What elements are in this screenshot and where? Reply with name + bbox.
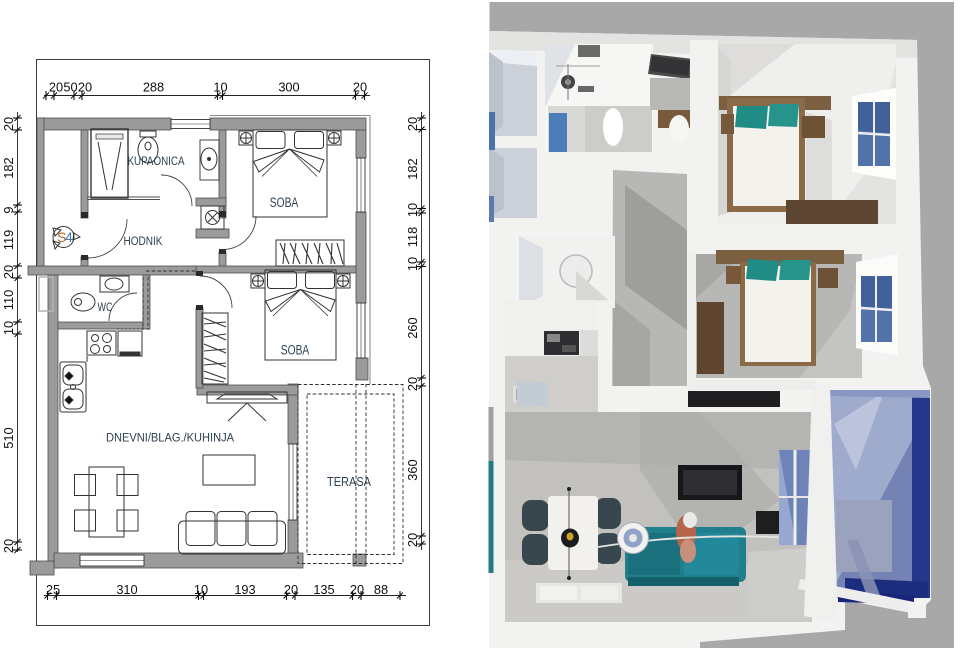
svg-text:50: 50: [63, 80, 77, 95]
svg-text:193: 193: [234, 582, 255, 597]
svg-text:510: 510: [1, 427, 16, 448]
svg-text:88: 88: [374, 582, 388, 597]
svg-text:SOBA: SOBA: [281, 343, 310, 359]
svg-text:10: 10: [405, 203, 420, 217]
svg-text:20: 20: [1, 265, 16, 279]
svg-text:4: 4: [65, 229, 73, 245]
svg-text:118: 118: [405, 227, 420, 247]
svg-text:20: 20: [405, 533, 420, 547]
svg-text:20: 20: [49, 80, 63, 95]
svg-text:TERASA: TERASA: [327, 474, 371, 489]
svg-text:9: 9: [1, 206, 16, 213]
svg-text:20: 20: [284, 582, 298, 597]
svg-text:20: 20: [350, 582, 364, 597]
svg-text:300: 300: [278, 80, 299, 95]
svg-text:10: 10: [194, 582, 208, 597]
svg-text:HODNIK: HODNIK: [124, 234, 164, 248]
svg-text:20: 20: [78, 80, 92, 95]
svg-text:20: 20: [353, 80, 367, 95]
svg-text:20: 20: [405, 377, 420, 391]
svg-text:110: 110: [1, 290, 16, 310]
svg-text:25: 25: [46, 582, 60, 597]
svg-text:182: 182: [405, 158, 420, 179]
svg-text:WC: WC: [98, 300, 113, 314]
svg-text:10: 10: [213, 80, 227, 95]
svg-text:DNEVNI/BLAG./KUHINJA: DNEVNI/BLAG./KUHINJA: [106, 431, 235, 445]
svg-text:SOBA: SOBA: [270, 195, 299, 211]
svg-text:135: 135: [313, 582, 334, 597]
svg-text:20: 20: [1, 117, 16, 131]
svg-text:182: 182: [1, 157, 16, 178]
svg-text:360: 360: [405, 459, 420, 480]
svg-text:10: 10: [1, 321, 16, 335]
svg-text:288: 288: [143, 80, 164, 95]
svg-text:119: 119: [1, 230, 16, 250]
svg-text:10: 10: [405, 257, 420, 271]
svg-text:KUPAONICA: KUPAONICA: [128, 154, 186, 168]
svg-text:20: 20: [1, 539, 16, 553]
svg-text:310: 310: [116, 582, 137, 597]
svg-text:260: 260: [405, 317, 420, 338]
svg-text:20: 20: [405, 117, 420, 131]
